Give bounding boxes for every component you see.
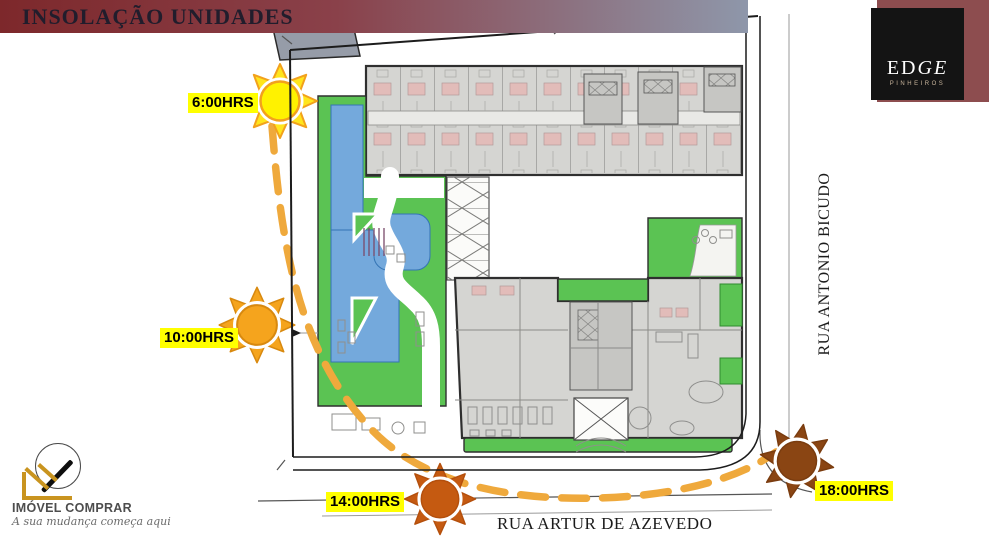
label-18hrs: 18:00HRS (815, 481, 893, 501)
brand-logo: EDGE PINHEIROS (871, 8, 964, 100)
street-name-bottom: RUA ARTUR DE AZEVEDO (497, 514, 712, 534)
agency-tagline: A sua mudança começa aqui (12, 515, 171, 528)
sun-14hrs-icon (404, 463, 475, 534)
site-plan-svg (0, 0, 989, 539)
insolation-diagram: INSOLAÇÃO UNIDADES EDGE PINHEIROS 6:00HR… (0, 0, 989, 539)
lower-building (455, 218, 742, 452)
label-14hrs: 14:00HRS (326, 492, 404, 512)
agency-name: IMÓVEL COMPRAR (12, 501, 132, 515)
title-banner: INSOLAÇÃO UNIDADES (0, 0, 748, 33)
brand-subtitle: PINHEIROS (890, 81, 946, 87)
floor-plan (318, 66, 742, 452)
page-title: INSOLAÇÃO UNIDADES (22, 4, 294, 30)
ramp-strip (447, 177, 489, 280)
brand-name: EDGE (887, 58, 948, 78)
apartment-building (366, 66, 742, 175)
street-name-right: RUA ANTONIO BICUDO (816, 173, 834, 356)
agency-logo-gold-bar (22, 496, 72, 500)
label-10hrs: 10:00HRS (160, 328, 238, 348)
label-6hrs: 6:00HRS (188, 93, 258, 113)
sun-10hrs-icon (219, 287, 294, 362)
